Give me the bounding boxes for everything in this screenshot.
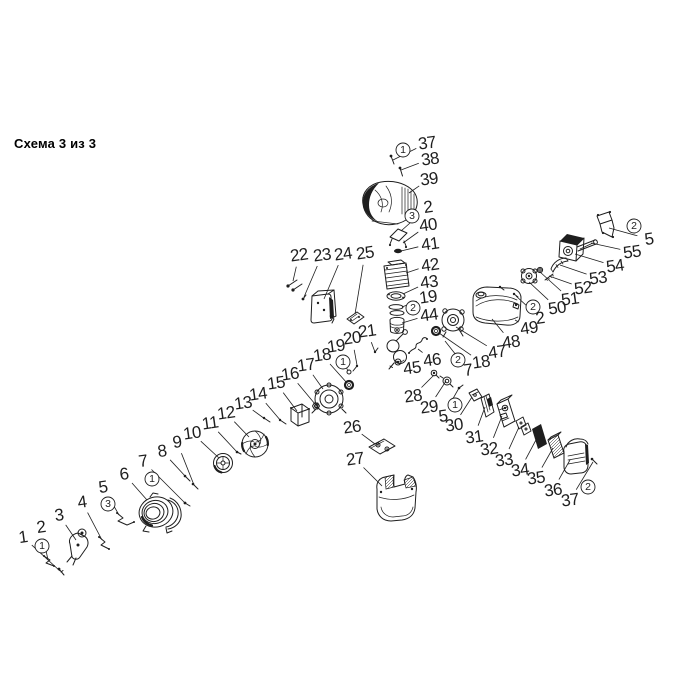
svg-text:3: 3	[105, 498, 111, 510]
part-number-8: 8	[156, 441, 168, 461]
quantity-badge-1: 1	[396, 143, 410, 157]
part-number-14: 14	[248, 383, 268, 404]
screw-part-23	[302, 295, 306, 300]
svg-text:1: 1	[340, 356, 346, 368]
rod-part-4	[98, 536, 110, 550]
flywheel-part-12	[242, 431, 268, 457]
piston-rings-part-19	[389, 305, 404, 316]
filter-element-part-34	[532, 424, 547, 449]
part-number-53: 53	[588, 267, 608, 288]
quantity-badge-3: 3	[101, 497, 115, 511]
exploded-parts-diagram: 1234567891011121314151617181920212223242…	[0, 0, 700, 700]
part-number-40: 40	[418, 214, 438, 235]
clutch-drum-part-54	[559, 234, 584, 261]
screw-part-37-top	[390, 155, 394, 164]
part-number-55: 55	[622, 241, 642, 262]
quantity-badge-2: 2	[451, 353, 465, 367]
parts-diagram-page: Схема 3 из 3	[0, 0, 700, 700]
part-number-44: 44	[419, 304, 439, 325]
pump-part-29	[440, 376, 453, 387]
screw-part-38	[399, 167, 403, 176]
quantity-badge-2: 2	[406, 301, 420, 315]
part-number-24: 24	[333, 243, 353, 264]
quantity-badge-2: 2	[581, 480, 595, 494]
part-number-5: 5	[643, 229, 655, 249]
leader-lines	[32, 148, 638, 571]
fan-cover-part-6	[136, 493, 181, 533]
part-number-7: 7	[137, 451, 149, 471]
part-number-6: 6	[118, 464, 130, 484]
part-number-1: 1	[17, 527, 29, 547]
part-number-29: 29	[419, 396, 439, 417]
screw-part-20	[353, 365, 358, 371]
svg-text:2: 2	[455, 354, 461, 366]
gasket-part-43	[387, 292, 405, 300]
screw-part-1	[58, 568, 64, 575]
part-number-22: 22	[289, 244, 309, 265]
washer-part-51	[537, 267, 542, 272]
clutch-plate-part-50	[521, 269, 537, 284]
part-number-21: 21	[357, 320, 377, 341]
gaskets-part-33	[516, 417, 531, 435]
quantity-badge-1: 1	[448, 398, 462, 412]
piston-part-44	[390, 317, 404, 333]
filter-part-35	[548, 432, 564, 458]
rear-cover-part-27	[377, 475, 417, 521]
part-number-5: 5	[97, 477, 109, 497]
ignition-coil-part-3	[67, 529, 88, 565]
muffler-part-24	[311, 290, 336, 323]
pin-part-13	[263, 417, 270, 422]
svg-text:2: 2	[410, 302, 416, 314]
part-number-46: 46	[422, 349, 442, 370]
part-number-39: 39	[419, 168, 439, 189]
cylinder-part-42	[384, 260, 409, 289]
part-number-38: 38	[420, 148, 440, 169]
part-number-48: 48	[501, 331, 521, 352]
part-number-25: 25	[355, 242, 375, 263]
pawl-bracket-part-15	[290, 404, 310, 426]
quantity-badge-3: 3	[405, 209, 419, 223]
screw-part-9	[192, 483, 198, 489]
part-number-23: 23	[312, 244, 332, 265]
part-number-54: 54	[605, 255, 625, 276]
svg-text:1: 1	[149, 473, 155, 485]
svg-text:2: 2	[631, 220, 637, 232]
part-number-3: 3	[53, 505, 65, 525]
quantity-badge-1: 1	[35, 539, 49, 553]
plate-part-26	[369, 439, 395, 454]
svg-text:1: 1	[400, 144, 406, 156]
bracket-part-5-right	[597, 211, 614, 238]
part-number-2: 2	[35, 517, 47, 537]
part-number-27: 27	[345, 448, 365, 469]
crankcase-part-17	[312, 383, 346, 415]
parts-artwork	[43, 155, 614, 575]
part-number-4: 4	[76, 492, 88, 512]
part-labels: 1234567891011121314151617181920212223242…	[17, 132, 655, 547]
part-number-10: 10	[182, 422, 202, 443]
svg-text:2: 2	[585, 481, 591, 493]
quantity-badge-2: 2	[526, 300, 540, 314]
part-number-26: 26	[342, 416, 362, 437]
quantity-badge-1: 1	[145, 472, 159, 486]
clutch-drum-part-10	[214, 454, 233, 473]
quantity-badge-2: 2	[627, 219, 641, 233]
part-number-45: 45	[402, 357, 422, 378]
svg-text:2: 2	[530, 301, 536, 313]
fuel-tank-part-48	[473, 287, 521, 325]
svg-text:1: 1	[452, 399, 458, 411]
bolts-part-22	[286, 280, 302, 292]
bracket-part-2-top	[389, 229, 407, 248]
part-number-37: 37	[560, 489, 580, 510]
svg-text:3: 3	[409, 210, 415, 222]
grommet-part-41	[394, 249, 402, 253]
part-number-30: 30	[444, 414, 464, 435]
screw-part-37-right	[591, 458, 597, 464]
air-filter-cover-part-36	[564, 439, 589, 474]
part-number-9: 9	[171, 432, 183, 452]
part-number-12: 12	[216, 402, 236, 423]
quantity-badge-1: 1	[336, 355, 350, 369]
part-number-41: 41	[420, 233, 440, 254]
bearing-part-18-right	[432, 327, 440, 335]
svg-text:1: 1	[39, 540, 45, 552]
band-part-53	[551, 258, 568, 272]
crankcase-part-47	[442, 309, 464, 337]
